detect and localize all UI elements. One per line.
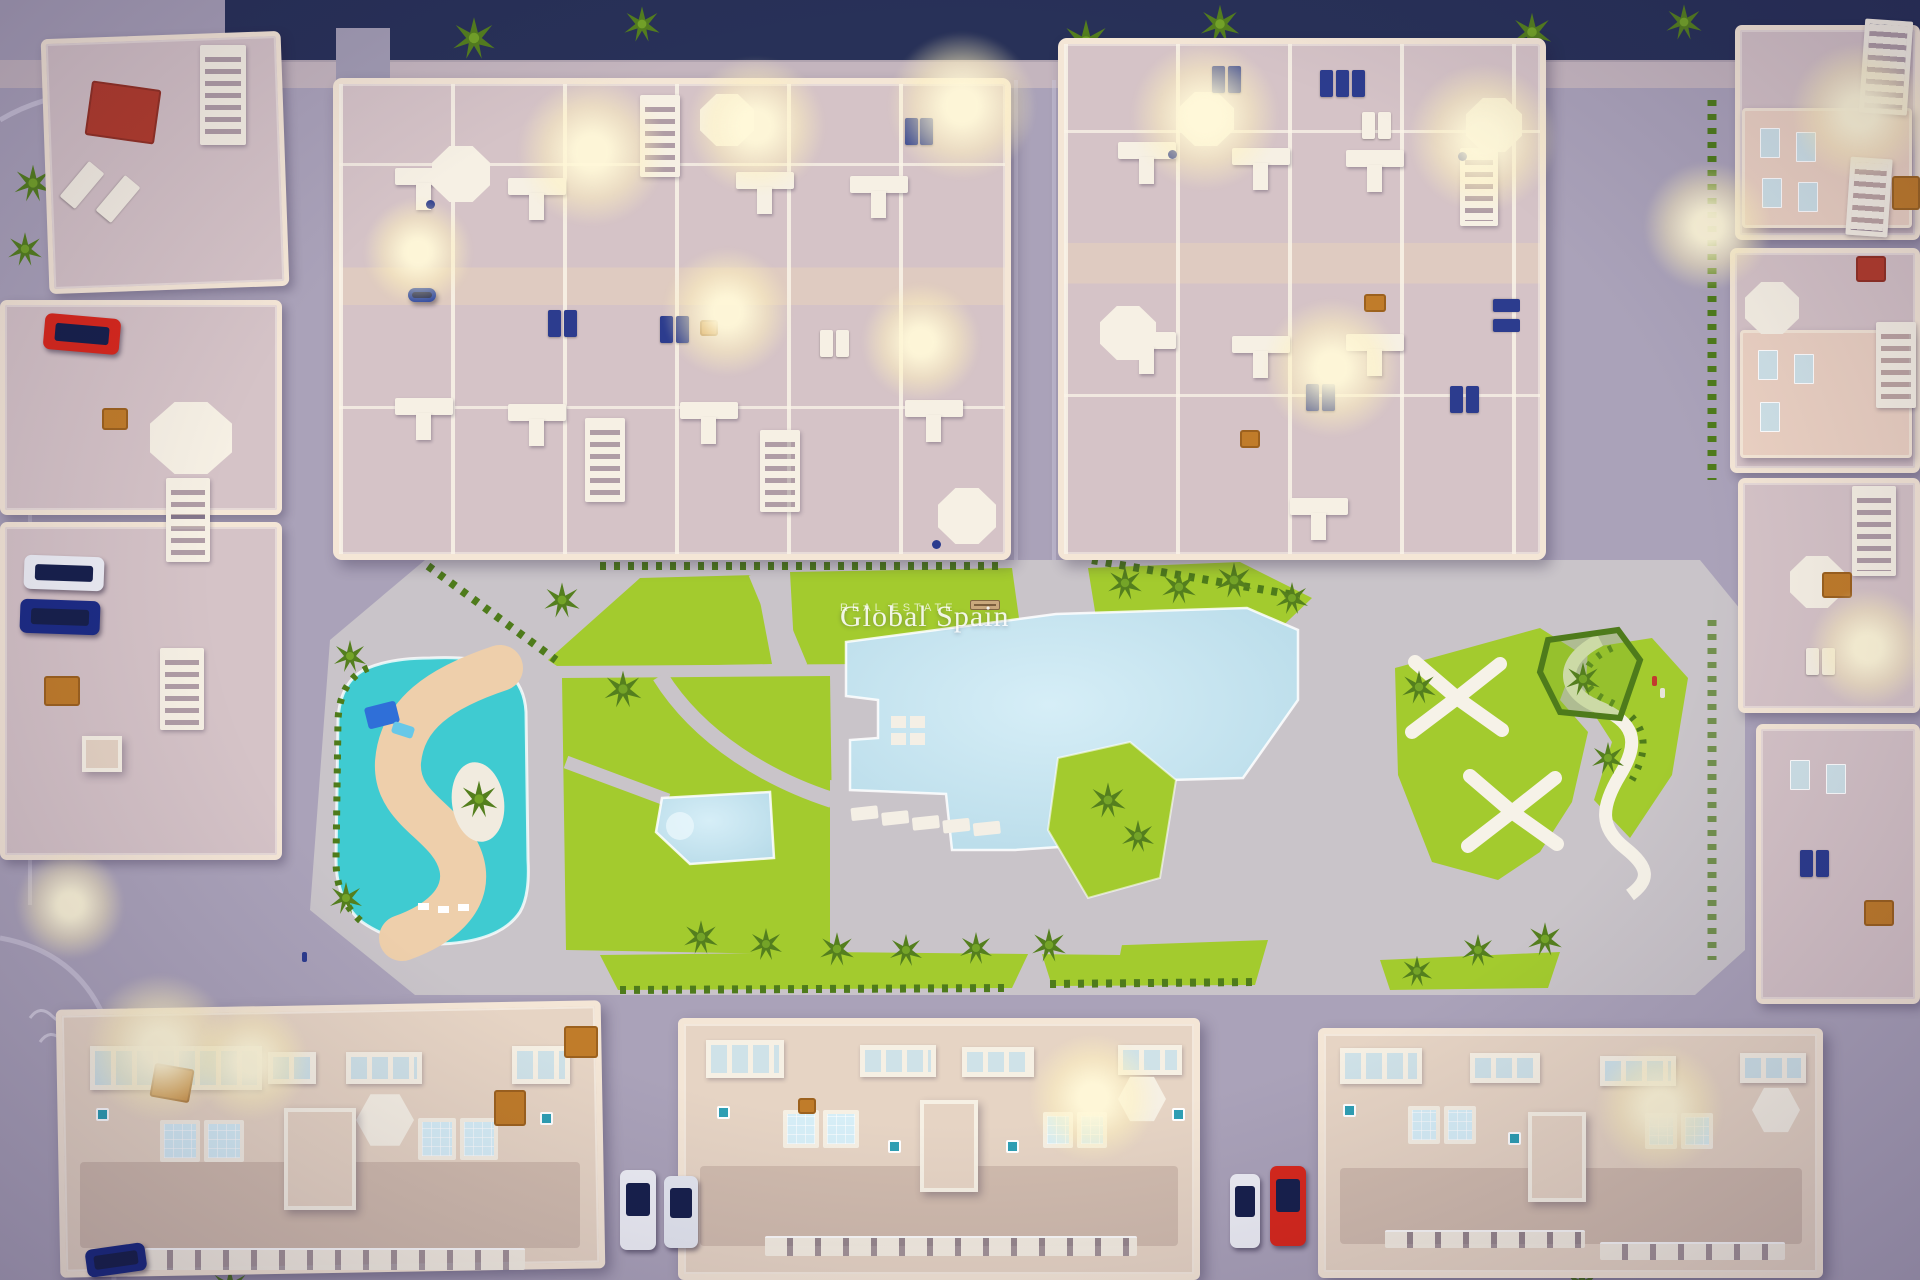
- window: [1758, 350, 1778, 380]
- rooftop-pool: [783, 1110, 819, 1148]
- lounger: [1493, 319, 1520, 332]
- lounger: [1228, 66, 1241, 93]
- roof-terrace-frames: [1340, 1048, 1422, 1084]
- roof-stairs: [1852, 486, 1896, 576]
- outdoor-table: [1822, 572, 1852, 598]
- window: [1794, 354, 1814, 384]
- window: [1760, 402, 1780, 432]
- rooftop-pool: [1444, 1106, 1476, 1144]
- jacuzzi: [888, 1140, 901, 1153]
- roof-terrace-frames: [860, 1045, 936, 1077]
- lounger: [836, 330, 849, 357]
- roof-stair-bulkhead: [736, 172, 794, 214]
- roof-terrace-frames: [268, 1052, 316, 1084]
- parasol: [432, 146, 490, 202]
- roof-terrace-frames: [962, 1047, 1034, 1077]
- lounger: [1378, 112, 1391, 139]
- roof-stair-bulkhead: [850, 176, 908, 218]
- roof-stairs: [640, 95, 680, 177]
- outdoor-table: [1364, 294, 1386, 312]
- lamp-dot: [426, 200, 435, 209]
- lounger: [1466, 386, 1479, 413]
- terrace-rug: [85, 80, 162, 144]
- rooftop-pool: [1043, 1112, 1073, 1148]
- window: [1826, 764, 1846, 794]
- outdoor-table: [1240, 430, 1260, 448]
- roof-terrace-frames: [512, 1046, 570, 1084]
- parasol: [938, 488, 996, 544]
- outdoor-table: [700, 320, 718, 336]
- rooftop-pool: [160, 1120, 200, 1162]
- roof-stairs: [1845, 157, 1892, 238]
- building-left-mid: [0, 300, 282, 515]
- roof-stairs: [200, 45, 246, 145]
- lounger: [920, 118, 933, 145]
- outdoor-table: [149, 1063, 194, 1103]
- rooftop-pool: [460, 1118, 498, 1160]
- rooftop-pool: [1645, 1113, 1677, 1149]
- window: [1760, 128, 1780, 158]
- roof-stairs: [1859, 18, 1913, 115]
- roof-stair-bulkhead: [1346, 150, 1404, 192]
- jacuzzi: [540, 1112, 553, 1125]
- jacuzzi: [1508, 1132, 1521, 1145]
- lounger: [1352, 70, 1365, 97]
- lounger: [1806, 648, 1819, 675]
- stair-core: [1528, 1112, 1586, 1202]
- outdoor-table: [798, 1098, 816, 1114]
- car-white: [1230, 1174, 1260, 1248]
- car-white: [23, 555, 104, 592]
- roof-stair-bulkhead: [508, 178, 566, 220]
- roof-stairs: [160, 648, 204, 730]
- car-red: [43, 313, 122, 355]
- roof-stairs: [166, 478, 210, 562]
- window: [1762, 178, 1782, 208]
- window: [1796, 132, 1816, 162]
- outdoor-table: [494, 1090, 526, 1126]
- roof-stairs: [585, 418, 625, 502]
- window-row: [145, 1248, 525, 1270]
- roof-stairs: [1876, 322, 1916, 408]
- roof-terrace-frames: [1118, 1045, 1182, 1075]
- roof-stair-bulkhead: [508, 404, 566, 446]
- jacuzzi: [1172, 1108, 1185, 1121]
- car-white: [620, 1170, 656, 1250]
- window: [1798, 182, 1818, 212]
- rooftop-pool: [823, 1110, 859, 1148]
- lounger: [1362, 112, 1375, 139]
- lounger: [1493, 299, 1520, 312]
- car-red: [1270, 1166, 1306, 1246]
- parasol: [1178, 92, 1234, 146]
- lamp-dot: [1458, 152, 1467, 161]
- lounger: [1450, 386, 1463, 413]
- stair-core: [82, 736, 122, 772]
- building-top-left: [41, 31, 290, 294]
- roof-terrace-frames: [1600, 1056, 1676, 1086]
- rooftop-pool: [1408, 1106, 1440, 1144]
- roof-stair-bulkhead: [1346, 334, 1404, 376]
- lounger: [1320, 70, 1333, 97]
- lounger: [548, 310, 561, 337]
- lounger: [1306, 384, 1319, 411]
- lounger: [1816, 850, 1829, 877]
- car-navy: [19, 599, 100, 636]
- stair-core: [920, 1100, 978, 1192]
- terrace-rug: [1892, 176, 1920, 210]
- parasol: [1100, 306, 1156, 360]
- roof-stair-bulkhead: [1118, 142, 1176, 184]
- roof-stair-bulkhead: [1290, 498, 1348, 540]
- lounger: [1322, 384, 1335, 411]
- property-aerial-render: Global Spain REAL ESTATE: [0, 0, 1920, 1280]
- lamp-dot: [1168, 150, 1177, 159]
- rooftop-pool: [1077, 1112, 1107, 1148]
- lounger: [1822, 648, 1835, 675]
- jacuzzi: [1006, 1140, 1019, 1153]
- roof-terrace-frames: [1470, 1053, 1540, 1083]
- stair-core: [284, 1108, 356, 1210]
- window-row: [1600, 1242, 1785, 1260]
- roof-stair-bulkhead: [905, 400, 963, 442]
- lounger: [1336, 70, 1349, 97]
- window-row: [765, 1236, 1137, 1256]
- outdoor-table: [1864, 900, 1894, 926]
- roof-stair-bulkhead: [1232, 148, 1290, 190]
- roof-terrace-frames: [706, 1040, 784, 1078]
- outdoor-table: [564, 1026, 598, 1058]
- roof-stair-bulkhead: [680, 402, 738, 444]
- rooftop-pool: [204, 1120, 244, 1162]
- window-row: [1385, 1230, 1585, 1248]
- lounger: [1800, 850, 1813, 877]
- lamp-dot: [932, 540, 941, 549]
- roof-terrace-frames: [1740, 1053, 1806, 1083]
- roof-terrace-frames: [346, 1052, 422, 1084]
- lounger: [1212, 66, 1225, 93]
- car-blue-small: [408, 288, 436, 302]
- splash-playground: [336, 658, 528, 944]
- lounger: [676, 316, 689, 343]
- rooftop-pool: [1681, 1113, 1713, 1149]
- jacuzzi: [1343, 1104, 1356, 1117]
- outdoor-table: [102, 408, 128, 430]
- lounger: [905, 118, 918, 145]
- terrace-rug: [1856, 256, 1886, 282]
- window: [1790, 760, 1810, 790]
- parasol: [1466, 98, 1522, 152]
- roof-stair-bulkhead: [1232, 336, 1290, 378]
- rooftop-pool: [418, 1118, 456, 1160]
- roof-stair-bulkhead: [395, 398, 453, 440]
- jacuzzi: [96, 1108, 109, 1121]
- lounger: [660, 316, 673, 343]
- lounger: [564, 310, 577, 337]
- roof-stairs: [1460, 148, 1498, 226]
- car-white: [664, 1176, 698, 1248]
- roof-stairs: [760, 430, 800, 512]
- jacuzzi: [717, 1106, 730, 1119]
- lounger: [820, 330, 833, 357]
- outdoor-table: [44, 676, 80, 706]
